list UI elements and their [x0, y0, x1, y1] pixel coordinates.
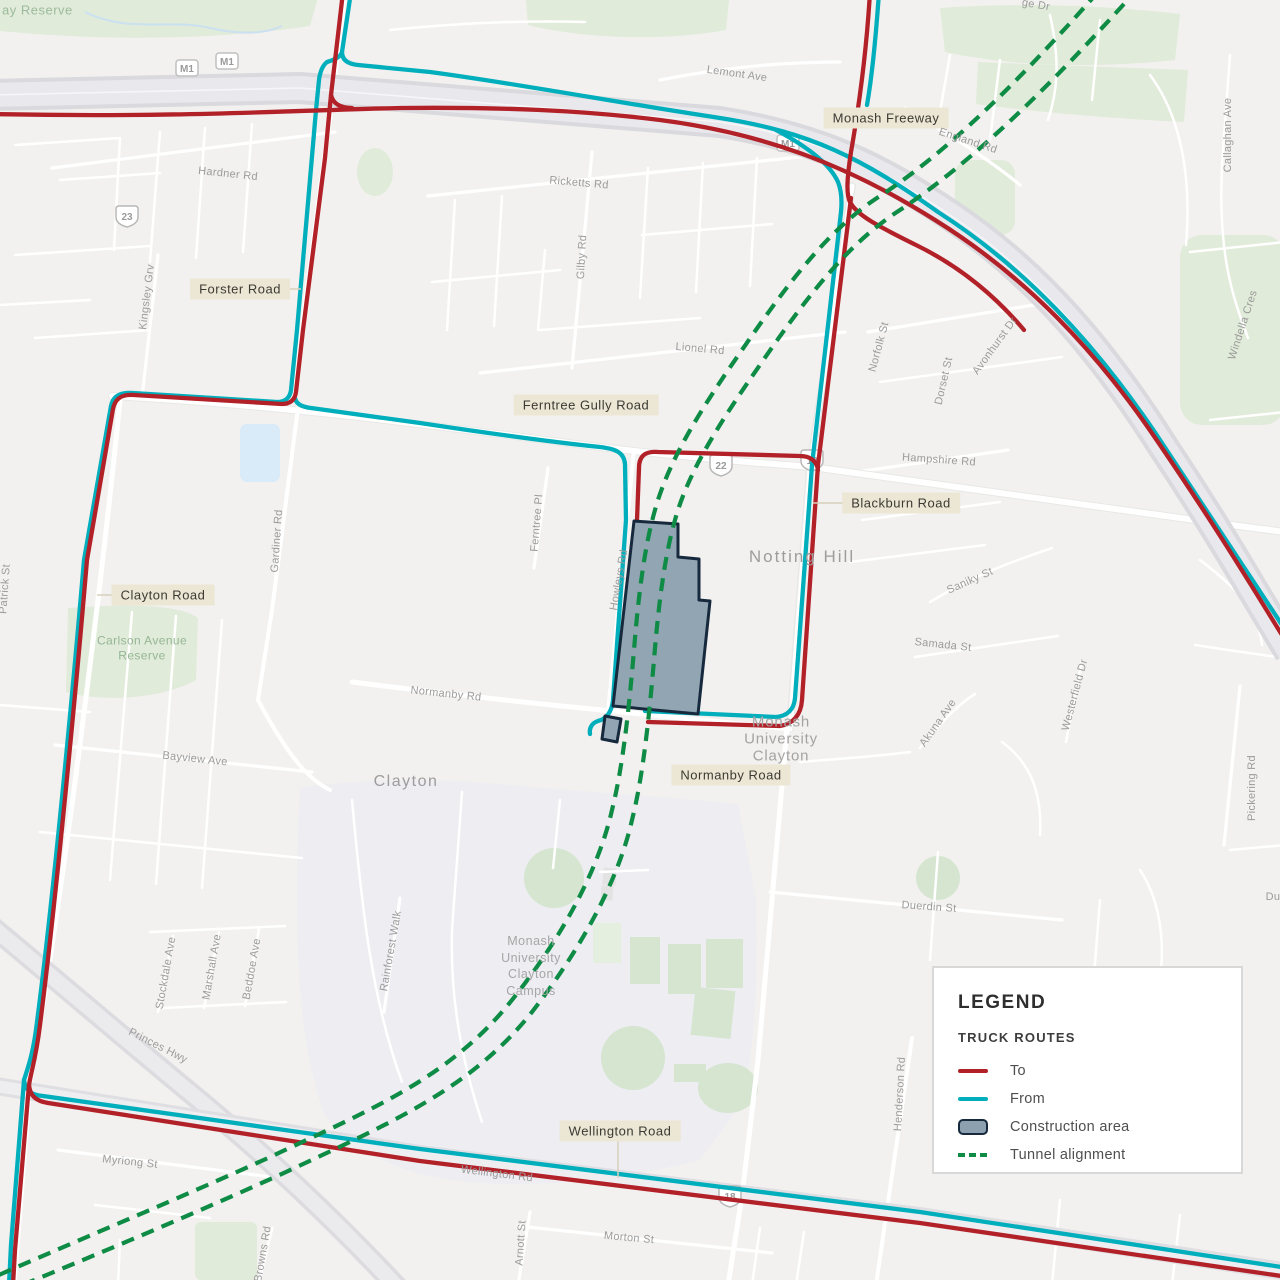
legend-item-to: To [958, 1059, 1217, 1083]
m1-shield: M1 [216, 53, 238, 69]
pond [240, 424, 280, 482]
truck-routes-map: M1 M1 M1 23 22 13 18 [0, 0, 1280, 1280]
legend-swatch-construction [958, 1119, 988, 1135]
svg-text:23: 23 [121, 212, 133, 223]
legend-section-title: TRUCK ROUTES [958, 1030, 1217, 1045]
route-22-shield: 22 [710, 455, 732, 476]
svg-text:M1: M1 [180, 64, 194, 75]
construction-area-small [602, 716, 621, 742]
legend-swatch-tunnel [958, 1153, 988, 1157]
legend-swatch-to-line [958, 1069, 988, 1073]
legend-label-to: To [1010, 1063, 1026, 1079]
legend-label-construction: Construction area [1010, 1119, 1130, 1135]
legend-label-from: From [1010, 1091, 1045, 1107]
legend-item-construction: Construction area [958, 1115, 1217, 1139]
svg-text:M1: M1 [220, 57, 234, 68]
route-23-shield: 23 [116, 206, 138, 227]
legend-title: LEGEND [958, 992, 1217, 1014]
legend-label-tunnel: Tunnel alignment [1010, 1147, 1126, 1163]
legend-swatch-from-line [958, 1097, 988, 1101]
legend-item-from: From [958, 1087, 1217, 1111]
legend-item-tunnel: Tunnel alignment [958, 1143, 1217, 1167]
m1-shield: M1 [176, 60, 198, 76]
svg-text:22: 22 [715, 461, 727, 472]
legend-swatch-construction-wrap [958, 1119, 988, 1135]
legend-panel: LEGEND TRUCK ROUTES To From Construction… [932, 966, 1243, 1174]
